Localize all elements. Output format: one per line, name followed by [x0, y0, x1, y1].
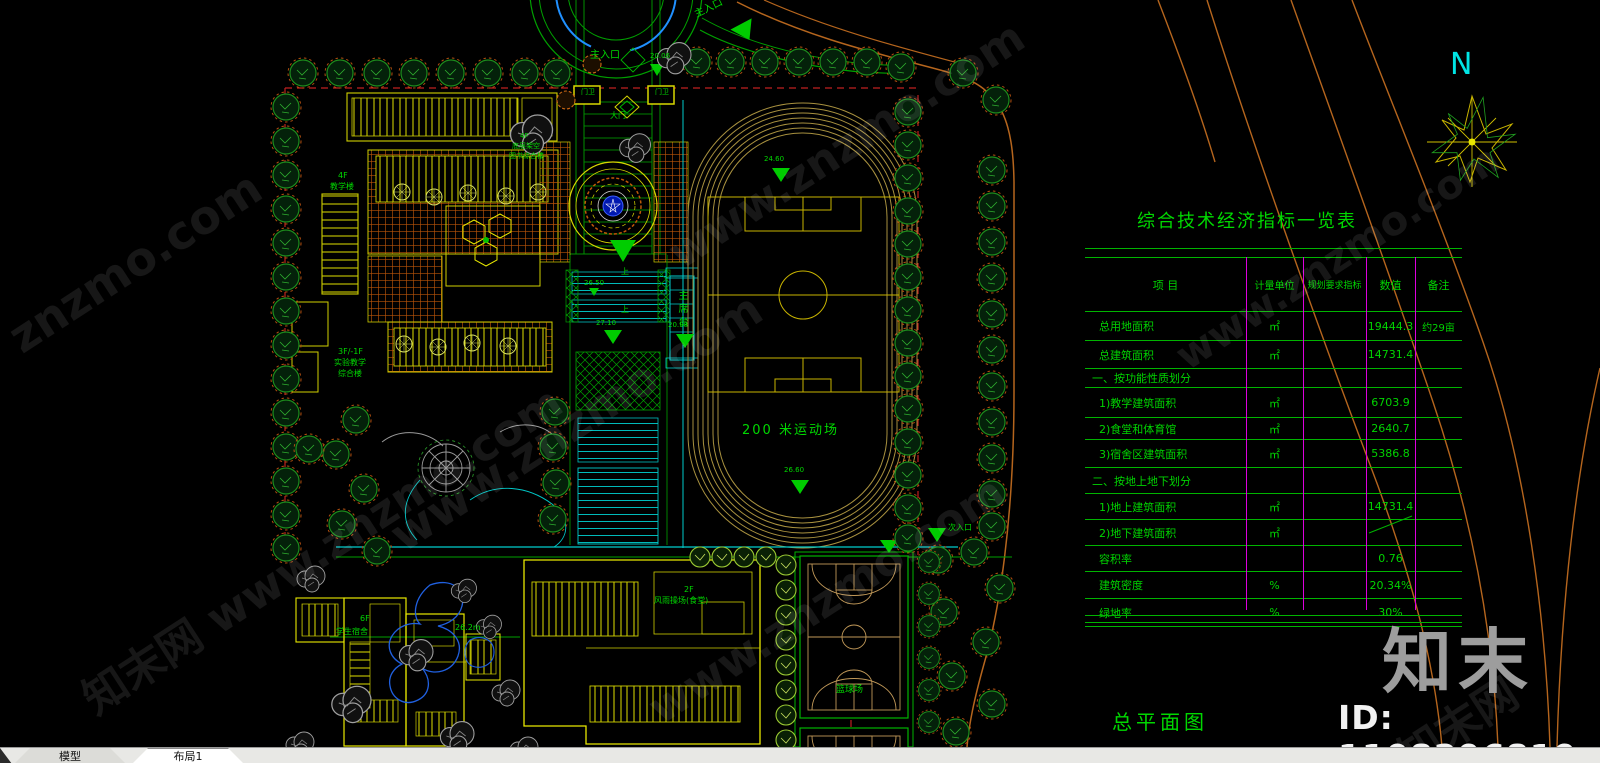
elevation-label: 24.60	[764, 156, 784, 163]
cell-value	[1366, 369, 1415, 387]
cell-req	[1303, 520, 1366, 545]
dorm-height-label: 26.2m	[455, 624, 481, 632]
guard-box-label: 门卫	[576, 89, 600, 96]
table-row: 1)教学建筑面积 ㎡ 6703.9	[1085, 388, 1462, 418]
cell-req	[1303, 440, 1366, 467]
cell-unit: ㎡	[1246, 341, 1303, 368]
cell-item: 容积率	[1085, 546, 1246, 571]
cell-item: 1)地上建筑面积	[1085, 494, 1246, 519]
table-row: 建筑密度 % 20.34%	[1085, 572, 1462, 599]
cell-value: 2640.7	[1366, 418, 1415, 439]
cell-unit	[1246, 468, 1303, 493]
cell-unit	[1246, 369, 1303, 387]
stairs-up-label: 上	[621, 306, 629, 314]
cell-item: 2)地下建筑面积	[1085, 520, 1246, 545]
cell-req	[1303, 494, 1366, 519]
table-top-line	[1085, 248, 1462, 249]
indicator-table: 项 目 计量单位 规划要求指标 数值 备注 总用地面积 ㎡ 19444.3 约2…	[1085, 257, 1462, 627]
dorm-floor-label: 6F	[360, 615, 370, 623]
cell-note	[1415, 520, 1462, 545]
cell-unit: ㎡	[1246, 388, 1303, 417]
cell-value: 14731.4	[1366, 494, 1415, 519]
cell-req	[1303, 572, 1366, 598]
cell-note	[1415, 572, 1462, 598]
north-label: N	[1450, 50, 1472, 80]
table-row: 2)地下建筑面积 ㎡	[1085, 520, 1462, 546]
cell-unit: ㎡	[1246, 418, 1303, 439]
table-row: 总建筑面积 ㎡ 14731.4	[1085, 341, 1462, 369]
wing-floor-label: 4F	[338, 172, 348, 180]
cell-unit: ㎡	[1246, 494, 1303, 519]
cell-req	[1303, 546, 1366, 571]
cell-req	[1303, 312, 1366, 340]
cell-unit	[1246, 546, 1303, 571]
canteen-label: 风雨操场(食堂)	[654, 597, 708, 605]
cell-item: 建筑密度	[1085, 572, 1246, 598]
cell-note	[1415, 494, 1462, 519]
table-section-row: 二、按地上地下划分	[1085, 468, 1462, 494]
header-req: 规划要求指标	[1303, 258, 1366, 311]
guard-box-label: 门卫	[650, 89, 674, 96]
cell-unit: ㎡	[1246, 440, 1303, 467]
gate-label: 大门	[610, 112, 626, 120]
teaching-label: 综合楼	[338, 370, 362, 378]
basketball-label: 篮球场	[836, 686, 863, 695]
cell-value: 19444.3	[1366, 312, 1415, 340]
cell-value	[1366, 520, 1415, 545]
cell-req	[1303, 341, 1366, 368]
cell-req	[1303, 369, 1366, 387]
elevation-label: 20.06	[650, 53, 670, 60]
cell-item: 1)教学建筑面积	[1085, 388, 1246, 417]
cell-value: 14731.4	[1366, 341, 1415, 368]
cell-value: 6703.9	[1366, 388, 1415, 417]
wing-name-label: 教学楼	[330, 183, 354, 191]
cell-note	[1415, 546, 1462, 571]
cad-viewer: 门卫 门卫 大门 主入口 主入口 20.06 24.60 26.50 27.10…	[0, 0, 1600, 763]
znzmo-logo: 知末	[1382, 606, 1534, 707]
cell-unit: ㎡	[1246, 312, 1303, 340]
table-row: 容积率 0.76	[1085, 546, 1462, 572]
header-value: 数值	[1366, 258, 1415, 311]
table-column-line	[1303, 257, 1304, 610]
dorm-label: 学生宿舍	[336, 628, 368, 636]
cell-value: 0.76	[1366, 546, 1415, 571]
library-label: 图书综合楼	[509, 153, 544, 160]
status-bar: 模型 布局1	[0, 747, 1600, 763]
table-header-row: 项 目 计量单位 规划要求指标 数值 备注	[1085, 258, 1462, 312]
statusbar-corner	[0, 748, 12, 763]
library-label: 底层架空	[512, 143, 540, 150]
cell-unit: %	[1246, 572, 1303, 598]
cell-item: 总用地面积	[1085, 312, 1246, 340]
cell-note	[1415, 388, 1462, 417]
table-column-line	[1366, 257, 1367, 610]
drawing-title: 总平面图	[1112, 712, 1208, 732]
cell-item: 总建筑面积	[1085, 341, 1246, 368]
table-row: 2)食堂和体育馆 ㎡ 2640.7	[1085, 418, 1462, 440]
cell-item: 一、按功能性质划分	[1085, 369, 1246, 387]
table-column-line	[1246, 257, 1247, 610]
cell-item: 2)食堂和体育馆	[1085, 418, 1246, 439]
header-unit: 计量单位	[1246, 258, 1303, 311]
elevation-label: 26.50	[584, 280, 604, 287]
tab-layout1[interactable]: 布局1	[132, 748, 244, 763]
teaching-label: 实验教学	[334, 359, 366, 367]
table-row: 总用地面积 ㎡ 19444.3 约29亩	[1085, 312, 1462, 341]
cell-note	[1415, 440, 1462, 467]
elevation-label: 26.60	[784, 467, 804, 474]
side-entrance-label: 次入口	[948, 524, 972, 532]
table-row: 1)地上建筑面积 ㎡ 14731.4	[1085, 494, 1462, 520]
table-section-row: 一、按功能性质划分	[1085, 369, 1462, 388]
header-note: 备注	[1415, 258, 1462, 311]
cell-note	[1415, 468, 1462, 493]
table-title: 综合技术经济指标一览表	[1137, 213, 1357, 231]
tab-model[interactable]: 模型	[14, 748, 126, 763]
cell-item: 3)宿舍区建筑面积	[1085, 440, 1246, 467]
elevation-label: 27.10	[596, 320, 616, 327]
cell-note: 约29亩	[1415, 312, 1462, 340]
cell-value: 5386.8	[1366, 440, 1415, 467]
main-entrance-label: 主入口	[590, 51, 620, 61]
header-item: 项 目	[1085, 258, 1246, 311]
cell-req	[1303, 388, 1366, 417]
rostrum-label: 主席台	[676, 290, 686, 329]
cell-req	[1303, 418, 1366, 439]
teaching-floor-label: 3F/-1F	[338, 348, 363, 356]
canteen-floor-label: 2F	[684, 586, 694, 594]
stairs-up-label: 上	[621, 268, 629, 276]
table-column-line	[1415, 257, 1416, 610]
cell-value	[1366, 468, 1415, 493]
cell-value: 20.34%	[1366, 572, 1415, 598]
track-label: 200 米运动场	[742, 424, 839, 437]
cell-note	[1415, 341, 1462, 368]
cell-note	[1415, 418, 1462, 439]
cell-unit: ㎡	[1246, 520, 1303, 545]
north-arrow-icon	[1427, 89, 1522, 191]
table-row: 3)宿舍区建筑面积 ㎡ 5386.8	[1085, 440, 1462, 468]
cell-req	[1303, 468, 1366, 493]
cell-note	[1415, 369, 1462, 387]
library-floor-label: 4F	[520, 133, 528, 140]
cell-item: 二、按地上地下划分	[1085, 468, 1246, 493]
